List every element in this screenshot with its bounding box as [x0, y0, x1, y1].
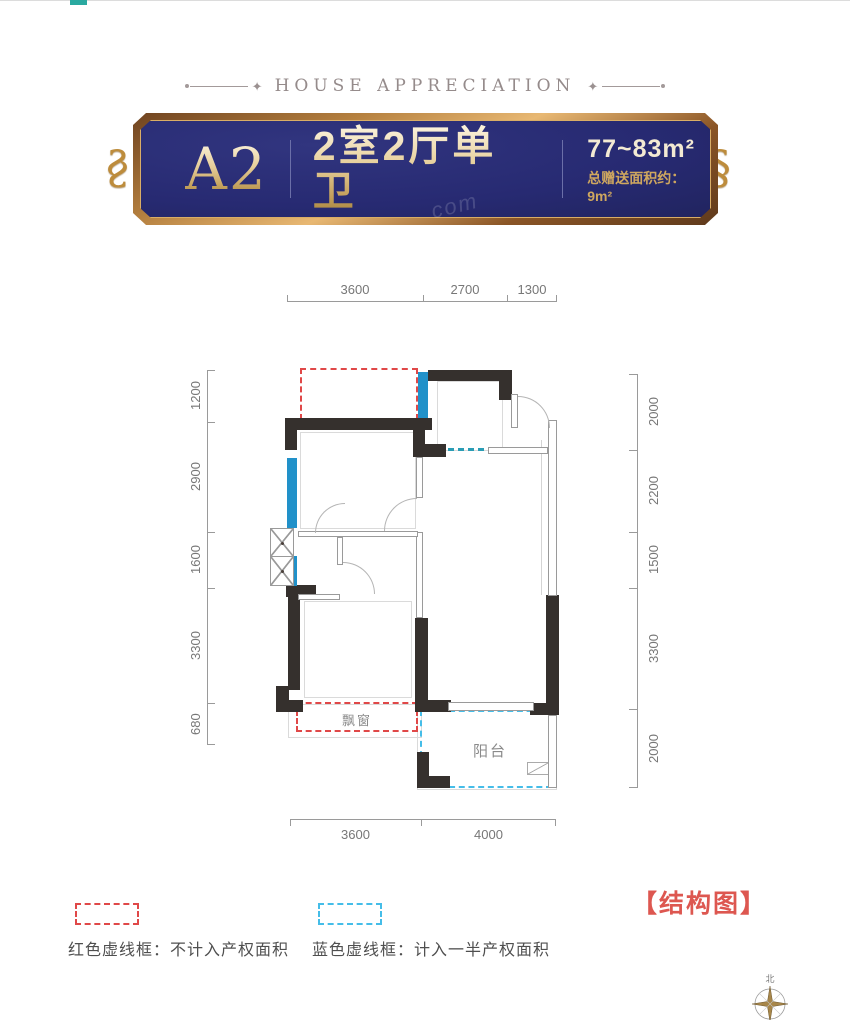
door-arc — [518, 396, 550, 428]
dim-label: 680 — [188, 703, 203, 745]
legend-red-text: 红色虚线框：不计入产权面积 — [68, 936, 289, 960]
wall-segment — [288, 585, 300, 690]
structure-diagram-tag: 【结构图】 — [632, 884, 767, 920]
dim-line-left — [207, 370, 208, 745]
flue-symbol — [270, 528, 294, 586]
area-info: 77~83m² 总赠送面积约：9m² — [587, 135, 710, 204]
balcony-slider-frame — [448, 702, 534, 711]
top-divider-line — [0, 0, 850, 1]
wall-segment — [415, 618, 428, 712]
vent-window-dashes — [448, 448, 490, 451]
dim-label: 4000 — [421, 827, 556, 842]
legend-blue-box — [318, 903, 382, 925]
balcony-label: 阳台 — [430, 740, 550, 761]
bonus-area: 总赠送面积约：9m² — [587, 168, 710, 204]
fleur-icon: ✦ — [587, 80, 598, 93]
compass-north-label: 北 — [765, 974, 774, 984]
entry-door-leaf — [511, 394, 518, 428]
dim-label: 3300 — [646, 588, 661, 709]
window-segment — [287, 458, 297, 528]
drain-symbol — [527, 762, 549, 775]
scroll-ornament-icon: § — [106, 140, 129, 194]
balcony-side-wall — [548, 715, 557, 788]
wall-segment — [285, 418, 432, 430]
dim-label: 3600 — [287, 282, 423, 297]
dim-label: 1200 — [188, 370, 203, 422]
unit-code: A2 — [185, 140, 268, 198]
interior-wall — [416, 532, 423, 618]
legend-blue-text: 蓝色虚线框：计入一半产权面积 — [312, 936, 550, 960]
dim-label: 3600 — [290, 827, 421, 842]
wall-segment — [413, 444, 446, 457]
ornament-right: ✦ — [587, 80, 660, 93]
interior-wall — [416, 457, 423, 498]
ornamental-header: ✦ HOUSE APPRECIATION ✦ — [0, 76, 850, 96]
dim-label: 2000 — [646, 374, 661, 450]
header-title: HOUSE APPRECIATION — [275, 76, 576, 96]
dim-label: 2900 — [188, 422, 203, 532]
wall-segment — [546, 595, 559, 715]
dim-line-bottom — [290, 819, 556, 820]
banner-inner-panel: A2 2室2厅单卫 77~83m² 总赠送面积约：9m² com — [140, 120, 711, 218]
unit-title-banner: A2 2室2厅单卫 77~83m² 总赠送面积约：9m² com — [133, 113, 718, 225]
corridor-inner-line — [541, 440, 542, 595]
dim-label: 3300 — [188, 588, 203, 703]
room-outline — [437, 381, 503, 451]
interior-wall — [298, 594, 340, 600]
window-segment — [418, 372, 428, 418]
compass-icon: 北 — [744, 970, 796, 1020]
wall-segment — [285, 418, 297, 450]
door-arc — [343, 562, 375, 594]
dim-label: 2700 — [423, 282, 507, 297]
dim-label: 1600 — [188, 532, 203, 588]
red-dashed-area-top — [300, 368, 418, 420]
interior-wall — [488, 447, 548, 454]
dim-label: 1500 — [646, 532, 661, 588]
floor-plan-page: ✦ HOUSE APPRECIATION ✦ § § A2 2室2厅单卫 77~… — [0, 0, 850, 1020]
wall-segment — [276, 700, 303, 712]
room-outline — [304, 601, 412, 698]
legend-red-box — [75, 903, 139, 925]
corridor-wall — [548, 420, 557, 596]
wall-segment — [530, 703, 559, 715]
dim-label: 2200 — [646, 450, 661, 532]
dim-line-right — [637, 374, 638, 788]
interior-wall — [337, 537, 343, 565]
unit-layout: 2室2厅单卫 — [313, 124, 540, 214]
ornament-left: ✦ — [190, 80, 263, 93]
banner-divider — [290, 140, 291, 198]
area-range: 77~83m² — [587, 135, 695, 164]
bay-window-label: 飘窗 — [296, 710, 418, 729]
wall-segment — [417, 776, 450, 788]
corner-teal-mark — [70, 0, 87, 5]
wall-segment — [415, 700, 451, 712]
dim-label: 1300 — [507, 282, 557, 297]
dim-label: 2000 — [646, 709, 661, 788]
banner-divider — [562, 140, 563, 198]
fleur-icon: ✦ — [252, 80, 263, 93]
dim-line-top — [287, 301, 557, 302]
